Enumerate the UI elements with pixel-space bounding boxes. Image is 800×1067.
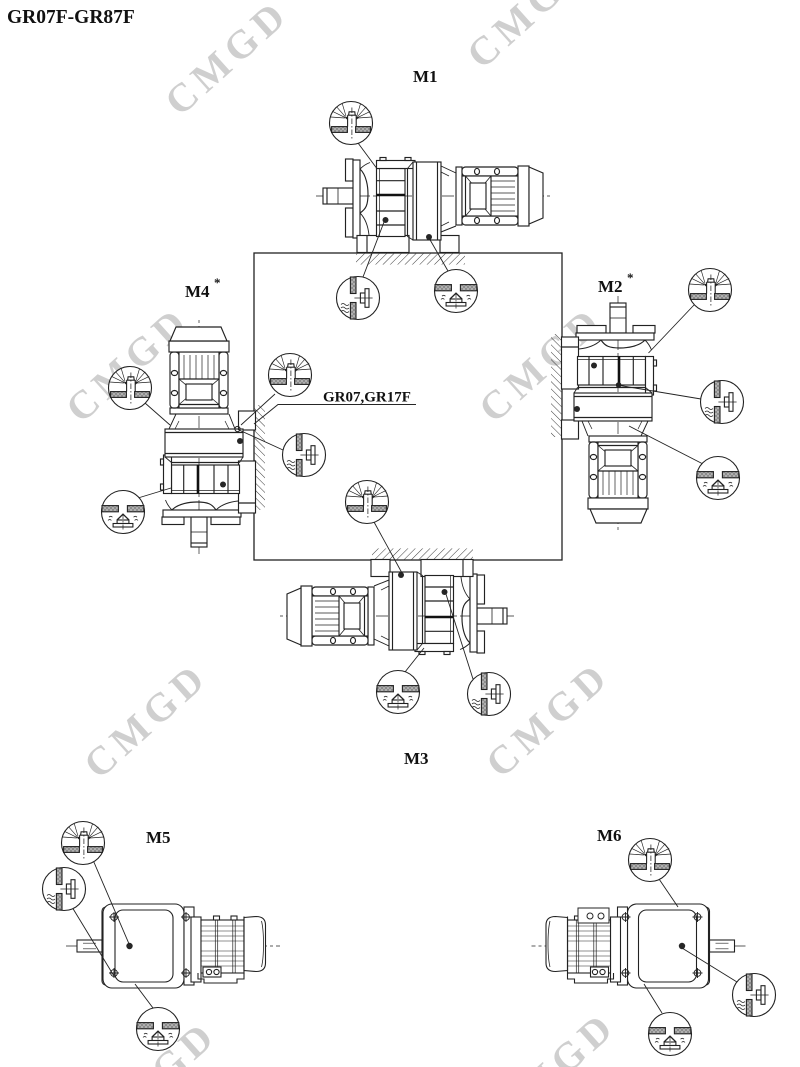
svg-text:M3: M3 (404, 749, 429, 768)
svg-text:M2: M2 (598, 277, 623, 296)
svg-text:CMGD: CMGD (156, 0, 298, 124)
svg-text:CMGD: CMGD (483, 1002, 625, 1067)
svg-text:M6: M6 (597, 826, 622, 845)
svg-text:M4: M4 (185, 282, 210, 301)
svg-text:M5: M5 (146, 828, 171, 847)
svg-text:GR07,GR17F: GR07,GR17F (323, 390, 411, 406)
svg-text:*: * (627, 270, 634, 285)
svg-text:*: * (214, 275, 221, 290)
svg-text:CMGD: CMGD (477, 652, 619, 786)
svg-text:CMGD: CMGD (75, 653, 217, 787)
svg-text:GR07F-GR87F: GR07F-GR87F (7, 7, 135, 28)
svg-text:CMGD: CMGD (458, 0, 600, 77)
svg-text:M1: M1 (413, 67, 438, 86)
